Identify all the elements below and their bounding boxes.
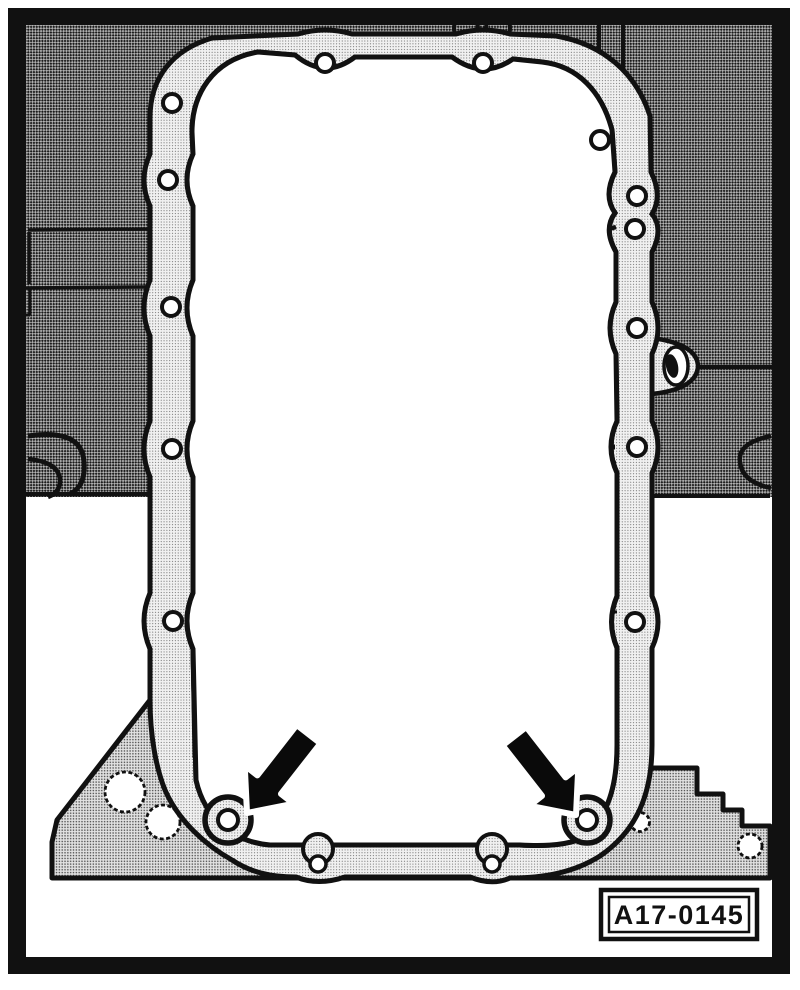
bolt-hole (164, 612, 182, 630)
bolt-hole (591, 131, 609, 149)
bolt-hole (162, 298, 180, 316)
bolt-hole (163, 440, 181, 458)
flange-hole (105, 772, 145, 812)
bolt-hole (474, 54, 492, 72)
bolt-hole-target (577, 810, 597, 830)
bolt-hole (159, 171, 177, 189)
bolt-hole (310, 856, 326, 872)
bolt-hole (484, 856, 500, 872)
bolt-hole (628, 187, 646, 205)
bolt-hole (626, 220, 644, 238)
figure-label: A17-0145 (614, 900, 745, 930)
figure-page: A17-0145 (0, 0, 800, 990)
bolt-hole (628, 319, 646, 337)
pan-cavity-edge (187, 52, 617, 845)
bolt-hole (628, 438, 646, 456)
bolt-hole (316, 54, 334, 72)
figure-label-box: A17-0145 (601, 890, 757, 939)
bolt-hole (626, 613, 644, 631)
oil-pan-diagram: A17-0145 (0, 0, 800, 990)
bolt-hole (163, 94, 181, 112)
bolt-hole-target (218, 810, 238, 830)
flange-hole (738, 834, 762, 858)
